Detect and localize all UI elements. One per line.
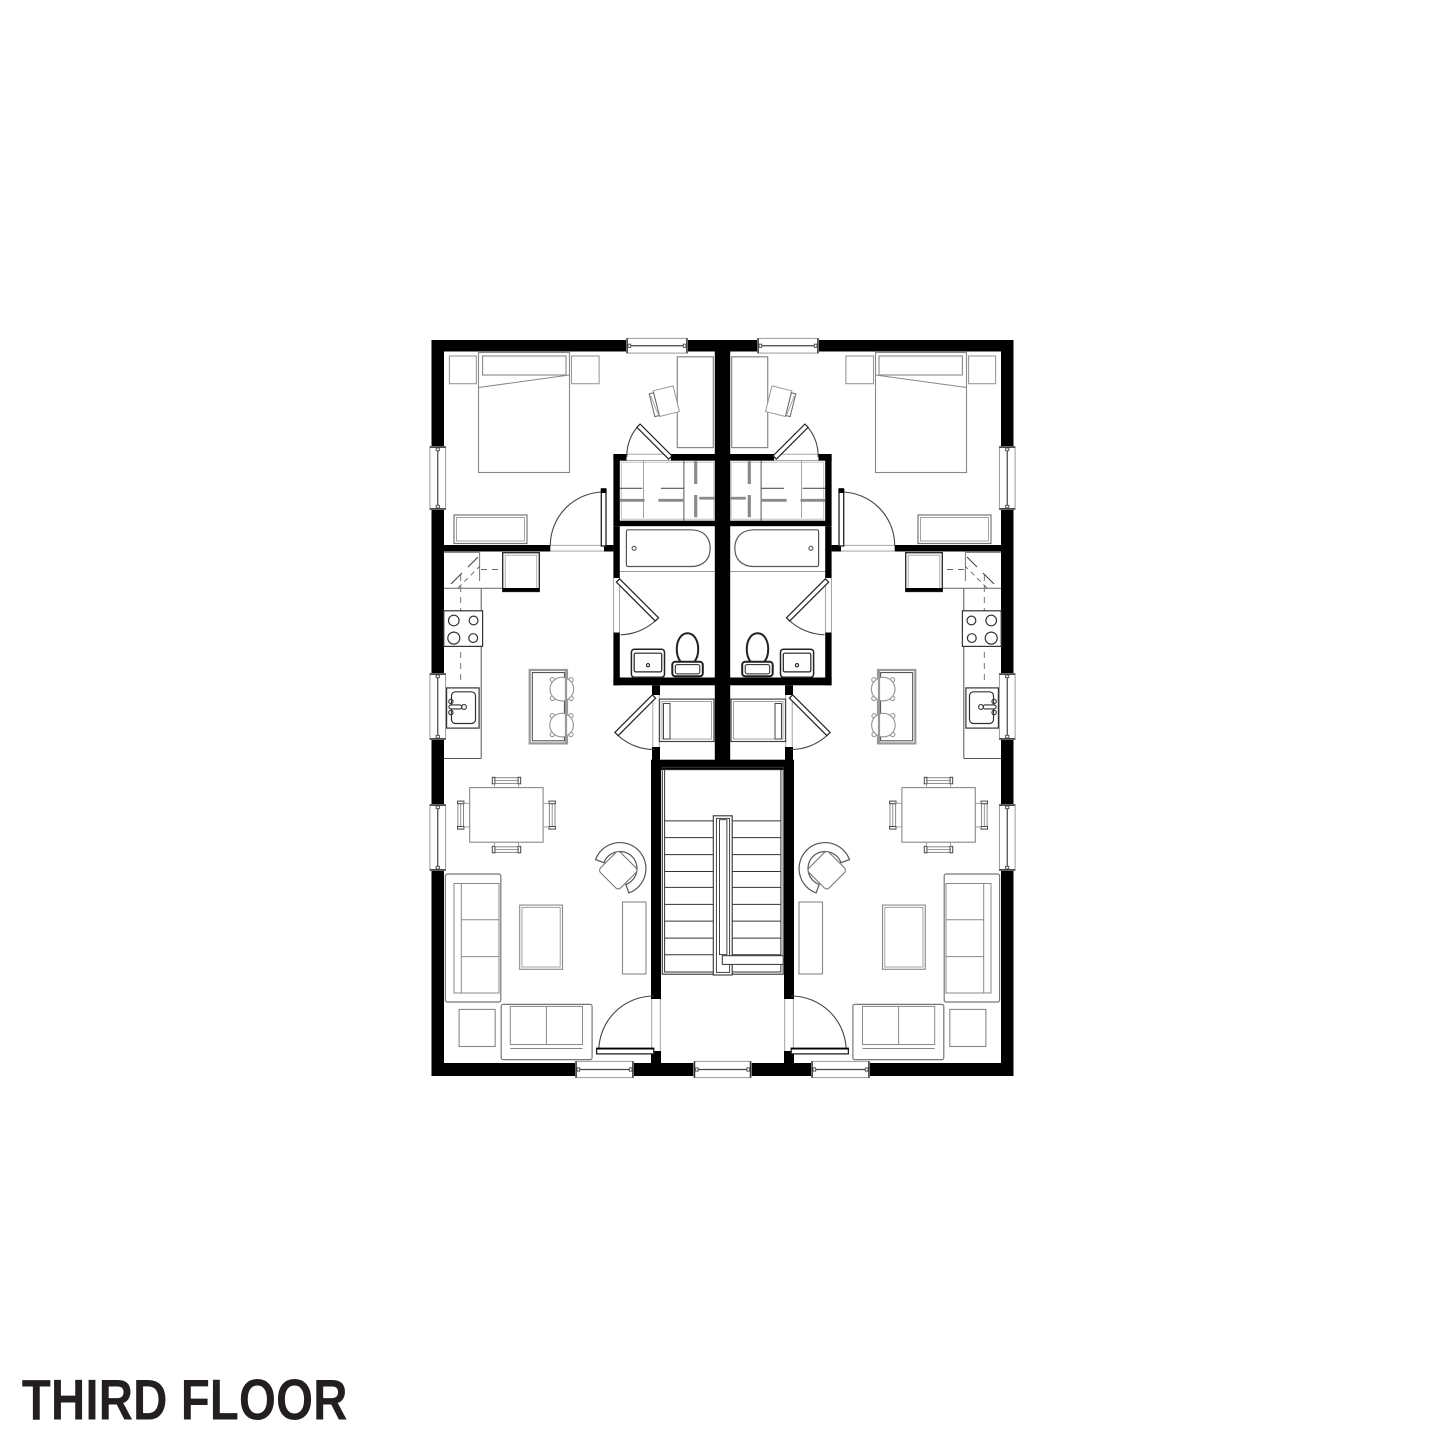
svg-text:THIRD FLOOR: THIRD FLOOR — [22, 1368, 348, 1432]
